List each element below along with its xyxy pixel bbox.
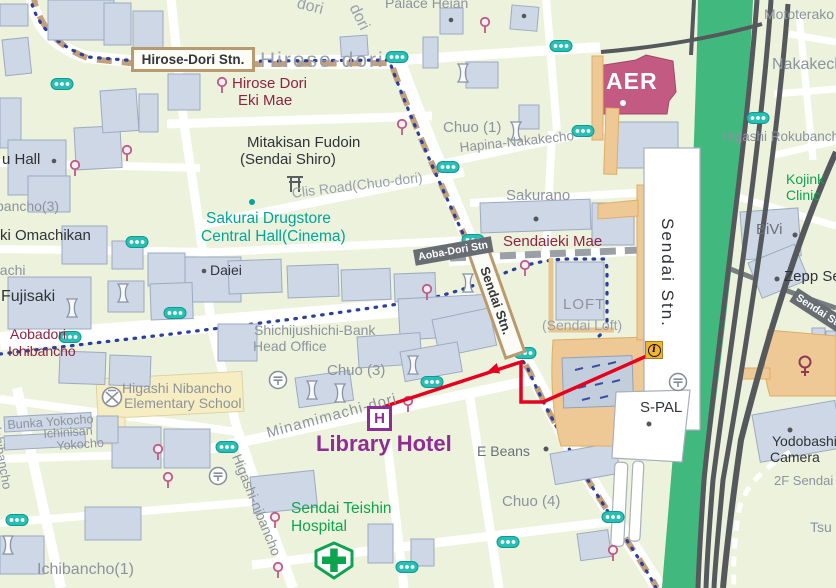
map-canvas[interactable]: Hirose-Dori Stn. Hirose-dori Hirose Dori… (0, 0, 836, 588)
map-base-layer (0, 0, 836, 588)
label-daiei: Daiei (210, 263, 242, 277)
label-palace-heian: Palace Heian (385, 0, 468, 10)
label-yokocho: Yokocho (56, 437, 104, 453)
label-u-hall: u Hall (2, 152, 40, 167)
label-chuo-4: Chuo (4) (502, 494, 560, 509)
label-hirose-dori-eki-mae-2: Eki Mae (238, 93, 292, 108)
label-bancho-3: bancho(3) (0, 199, 59, 213)
label-nakakecho: Nakakecho (772, 57, 836, 73)
school-icon (103, 388, 122, 407)
info-icon: i (645, 341, 663, 359)
label-chuo-1: Chuo (1) (443, 120, 501, 135)
label-fujisaki: Fujisaki (1, 289, 55, 305)
label-shichijushichi-bank: Shichijushichi-Bank (254, 323, 375, 337)
label-ki-omachikan: ki Omachikan (0, 228, 91, 243)
label-ichibancho-1: Ichibancho(1) (37, 562, 134, 578)
label-aobadori-ichibancho-2: Ichibancho (8, 344, 76, 358)
label-head-office: Head Office (253, 339, 327, 353)
hotel-icon-letter: H (374, 410, 385, 427)
label-loft: LOFT (563, 297, 605, 312)
label-sakurai-drugstore: Sakurai Drugstore (206, 211, 331, 227)
label-sendai-station-building: Sendai Stn. (659, 218, 676, 328)
label-sendai-teishin-1: Sendai Teishin (291, 501, 392, 517)
label-higashi-nibancho-school-2: Elementary School (124, 396, 242, 410)
label-aer: AER (606, 70, 658, 93)
label-mototerakoji: Mototerako (764, 7, 834, 21)
label-kojinkai-1: Kojink (786, 172, 824, 186)
label-bivi: BiVi (756, 222, 782, 237)
label-yodobashi-camera-2: Camera (770, 450, 820, 464)
label-aobadori-1: Aobadori (10, 327, 66, 341)
label-yodobashi-1: Yodobashi (772, 434, 836, 448)
info-icon-letter: i (648, 344, 661, 357)
hotel-icon: H (367, 406, 392, 431)
label-chuo-3: Chuo (3) (327, 363, 385, 378)
station-box-hirose-dori: Hirose-Dori Stn. (131, 47, 255, 72)
label-mitakisan-fudoin-1: Mitakisan Fudoin (247, 135, 360, 150)
station-box-hirose-dori-label: Hirose-Dori Stn. (142, 52, 245, 67)
label-sakurano: Sakurano (506, 188, 570, 203)
label-library-hotel: Library Hotel (316, 433, 452, 455)
label-s-pal: S-PAL (640, 400, 682, 415)
label-tsu: Tsu (810, 520, 832, 534)
label-central-hall-cinema: Central Hall(Cinema) (201, 229, 346, 245)
label-higashi-nibancho-school-1: Higashi Nibancho (122, 381, 232, 395)
label-yodobashi-2f-sendai: 2F Sendai (774, 474, 833, 487)
label-zepp-sendai: Zepp Sendai (784, 269, 836, 284)
label-sendaieki-mae: Sendaieki Mae (503, 234, 602, 249)
label-e-beans: E Beans (477, 444, 530, 458)
label-kojinkai-2: Clinic (786, 188, 820, 202)
label-sendai-loft: (Sendai Loft) (542, 318, 622, 332)
label-hirose-dori-street: Hirose-dori (260, 50, 385, 71)
label-sendai-teishin-hospital-2: Hospital (291, 519, 347, 535)
label-bachi: bachi (0, 263, 25, 277)
label-mitakisan-fudoin-2: (Sendai Shiro) (240, 152, 336, 167)
label-higashi-rokubancho: Higashi Rokubancho (722, 130, 836, 144)
label-hirose-dori-eki-mae-1: Hirose Dori (232, 76, 307, 91)
